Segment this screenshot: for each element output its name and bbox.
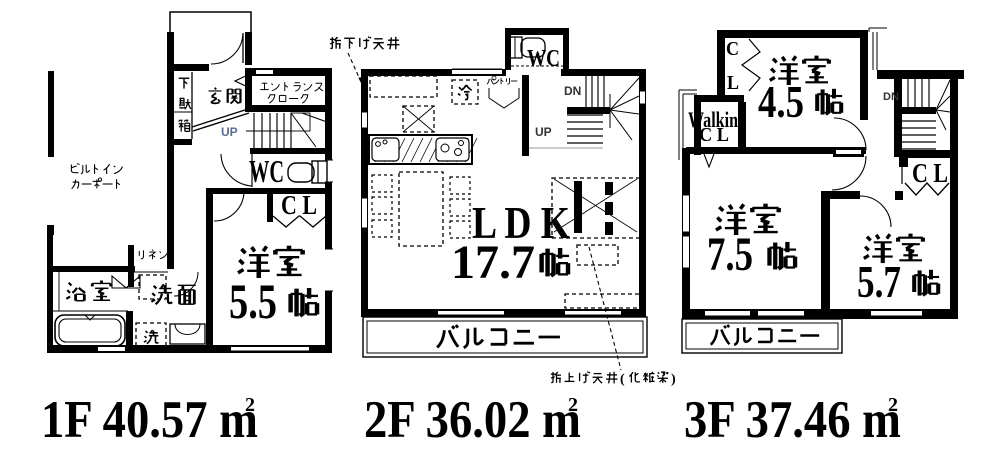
svg-text:2: 2 xyxy=(888,394,898,416)
svg-text:2: 2 xyxy=(245,394,255,416)
svg-text:C L: C L xyxy=(699,124,729,146)
svg-text:UP: UP xyxy=(221,125,238,139)
svg-text:C: C xyxy=(726,38,739,60)
svg-text:2: 2 xyxy=(568,394,578,416)
svg-text:4.5: 4.5 xyxy=(758,76,804,127)
svg-text:UP: UP xyxy=(535,125,552,139)
svg-text:7.5: 7.5 xyxy=(707,228,753,281)
svg-text:WC: WC xyxy=(249,153,284,189)
svg-text:C L: C L xyxy=(912,158,948,188)
svg-text:5.5: 5.5 xyxy=(229,273,277,329)
svg-text:WC: WC xyxy=(527,46,560,72)
svg-text:C L: C L xyxy=(281,190,317,220)
svg-text:17.7: 17.7 xyxy=(451,236,535,289)
svg-text:(: ( xyxy=(620,372,625,387)
svg-text:1F 40.57 m: 1F 40.57 m xyxy=(41,391,258,449)
svg-text:): ) xyxy=(671,372,676,387)
svg-text:5.7: 5.7 xyxy=(857,256,901,307)
svg-text:2F 36.02 m: 2F 36.02 m xyxy=(364,391,581,449)
svg-text:3F 37.46 m: 3F 37.46 m xyxy=(684,391,901,449)
svg-text:DN: DN xyxy=(564,84,581,98)
svg-text:L: L xyxy=(727,72,739,94)
svg-text:DN: DN xyxy=(883,91,899,103)
